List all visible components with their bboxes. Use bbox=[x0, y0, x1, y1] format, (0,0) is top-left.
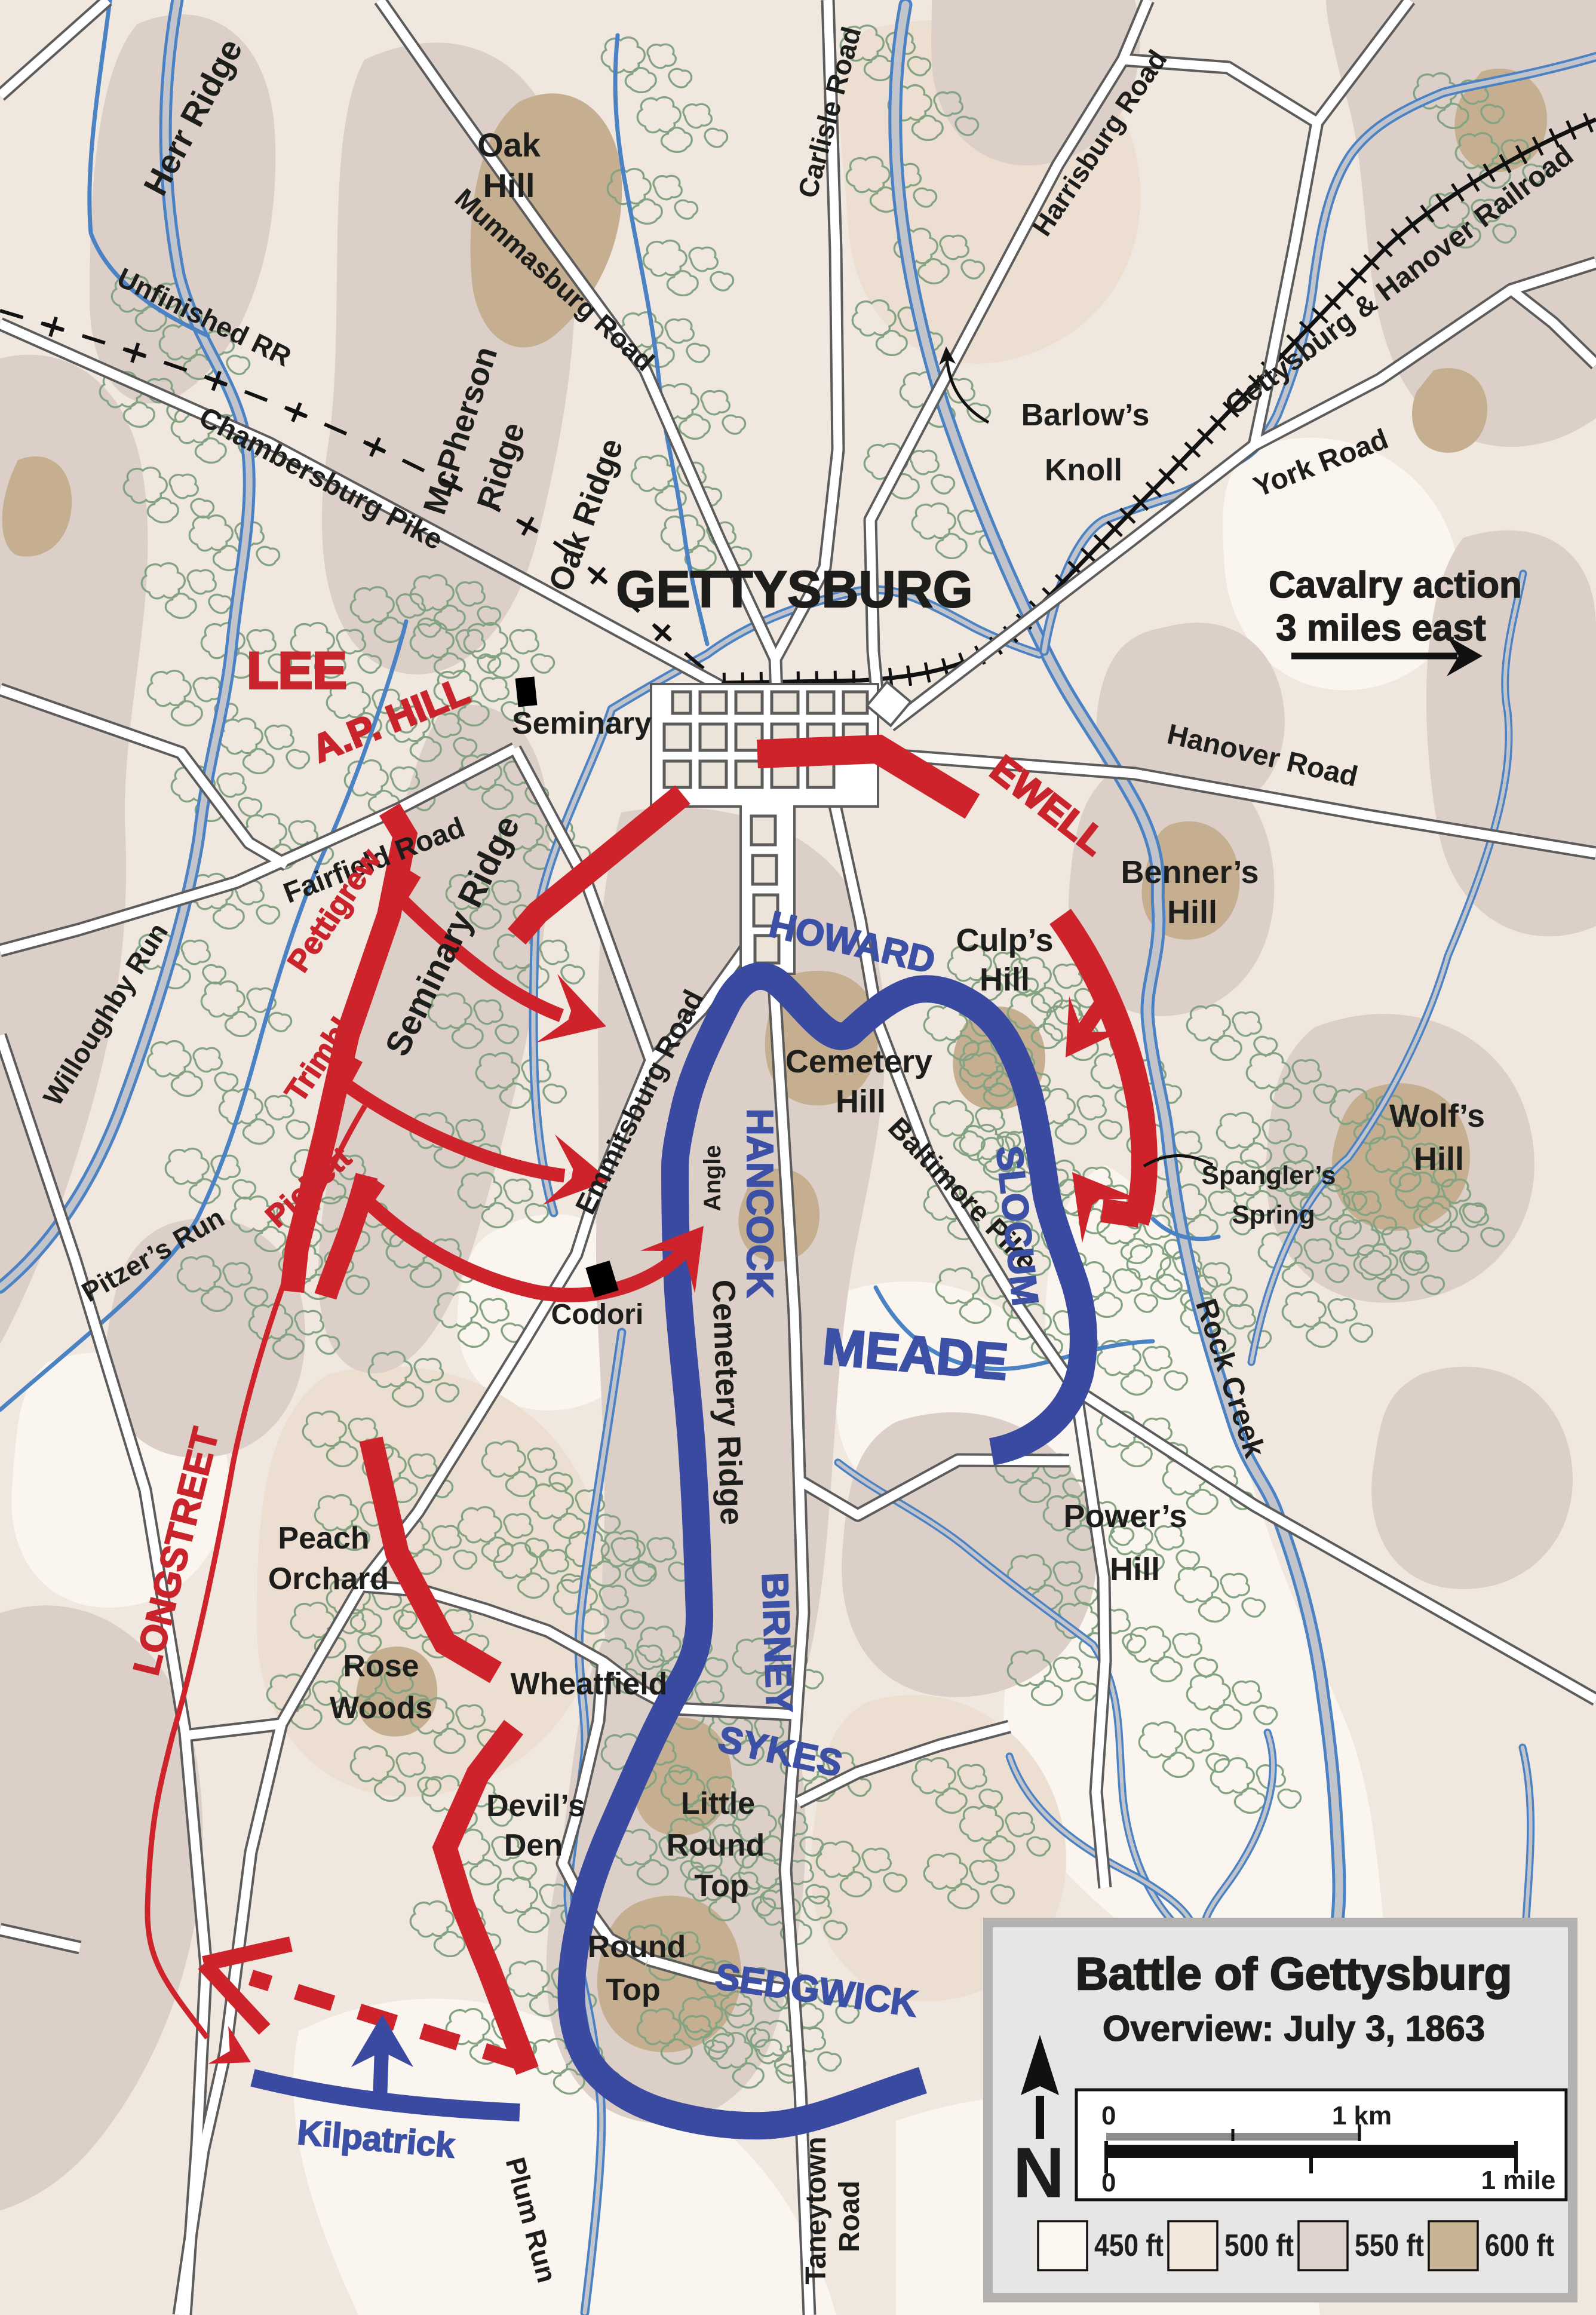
svg-text:Top: Top bbox=[606, 1973, 660, 2007]
svg-text:550 ft: 550 ft bbox=[1355, 2228, 1424, 2263]
svg-text:Wolf’s: Wolf’s bbox=[1389, 1098, 1485, 1134]
svg-text:Oak: Oak bbox=[477, 126, 541, 164]
svg-text:Codori: Codori bbox=[551, 1299, 644, 1330]
svg-text:LEE: LEE bbox=[247, 642, 346, 700]
svg-text:Hill: Hill bbox=[980, 962, 1030, 998]
svg-text:Seminary: Seminary bbox=[512, 706, 652, 741]
svg-text:Angle: Angle bbox=[699, 1145, 726, 1211]
svg-text:Cavalry action: Cavalry action bbox=[1269, 565, 1522, 606]
svg-text:Den: Den bbox=[504, 1828, 563, 1863]
svg-text:Round: Round bbox=[667, 1828, 765, 1863]
svg-text:Orchard: Orchard bbox=[268, 1562, 389, 1596]
svg-text:Spangler’s: Spangler’s bbox=[1202, 1161, 1336, 1190]
svg-text:Overview: July 3, 1863: Overview: July 3, 1863 bbox=[1103, 2009, 1485, 2049]
svg-text:Culp’s: Culp’s bbox=[956, 922, 1053, 958]
svg-text:600 ft: 600 ft bbox=[1485, 2228, 1554, 2263]
svg-text:N: N bbox=[1013, 2133, 1065, 2213]
svg-text:Hill: Hill bbox=[1167, 894, 1217, 930]
svg-text:BIRNEY: BIRNEY bbox=[754, 1572, 800, 1713]
svg-text:Hill: Hill bbox=[1414, 1141, 1464, 1177]
svg-text:Spring: Spring bbox=[1232, 1200, 1315, 1229]
svg-text:450 ft: 450 ft bbox=[1094, 2228, 1164, 2263]
svg-text:Hill: Hill bbox=[483, 167, 535, 204]
svg-text:Woods: Woods bbox=[330, 1691, 432, 1725]
svg-text:Cemetery: Cemetery bbox=[785, 1044, 932, 1080]
svg-text:Taneytown: Taneytown bbox=[800, 2136, 832, 2284]
svg-text:Round: Round bbox=[588, 1930, 686, 1964]
svg-text:Battle of Gettysburg: Battle of Gettysburg bbox=[1076, 1949, 1512, 2000]
svg-text:HANCOCK: HANCOCK bbox=[739, 1109, 780, 1298]
svg-text:0: 0 bbox=[1101, 2168, 1116, 2197]
svg-text:500 ft: 500 ft bbox=[1224, 2228, 1294, 2263]
svg-text:Little: Little bbox=[681, 1786, 755, 1821]
svg-text:Knoll: Knoll bbox=[1045, 453, 1122, 487]
svg-text:Benner’s: Benner’s bbox=[1121, 854, 1259, 890]
svg-text:3 miles east: 3 miles east bbox=[1276, 608, 1486, 649]
svg-text:Top: Top bbox=[694, 1869, 748, 1903]
svg-text:0: 0 bbox=[1101, 2101, 1116, 2130]
svg-text:Peach: Peach bbox=[278, 1521, 369, 1556]
svg-text:1 mile: 1 mile bbox=[1481, 2166, 1556, 2195]
svg-text:Devil’s: Devil’s bbox=[486, 1789, 585, 1823]
svg-text:GETTYSBURG: GETTYSBURG bbox=[616, 561, 972, 618]
svg-text:Barlow’s: Barlow’s bbox=[1021, 398, 1150, 433]
svg-text:Wheatfield: Wheatfield bbox=[511, 1667, 668, 1701]
svg-text:Rose: Rose bbox=[343, 1649, 419, 1684]
svg-text:Road: Road bbox=[834, 2181, 865, 2252]
svg-text:Hill: Hill bbox=[1110, 1551, 1160, 1587]
svg-text:Power’s: Power’s bbox=[1063, 1498, 1187, 1534]
svg-text:Hill: Hill bbox=[836, 1084, 886, 1120]
svg-text:1 km: 1 km bbox=[1332, 2101, 1392, 2130]
